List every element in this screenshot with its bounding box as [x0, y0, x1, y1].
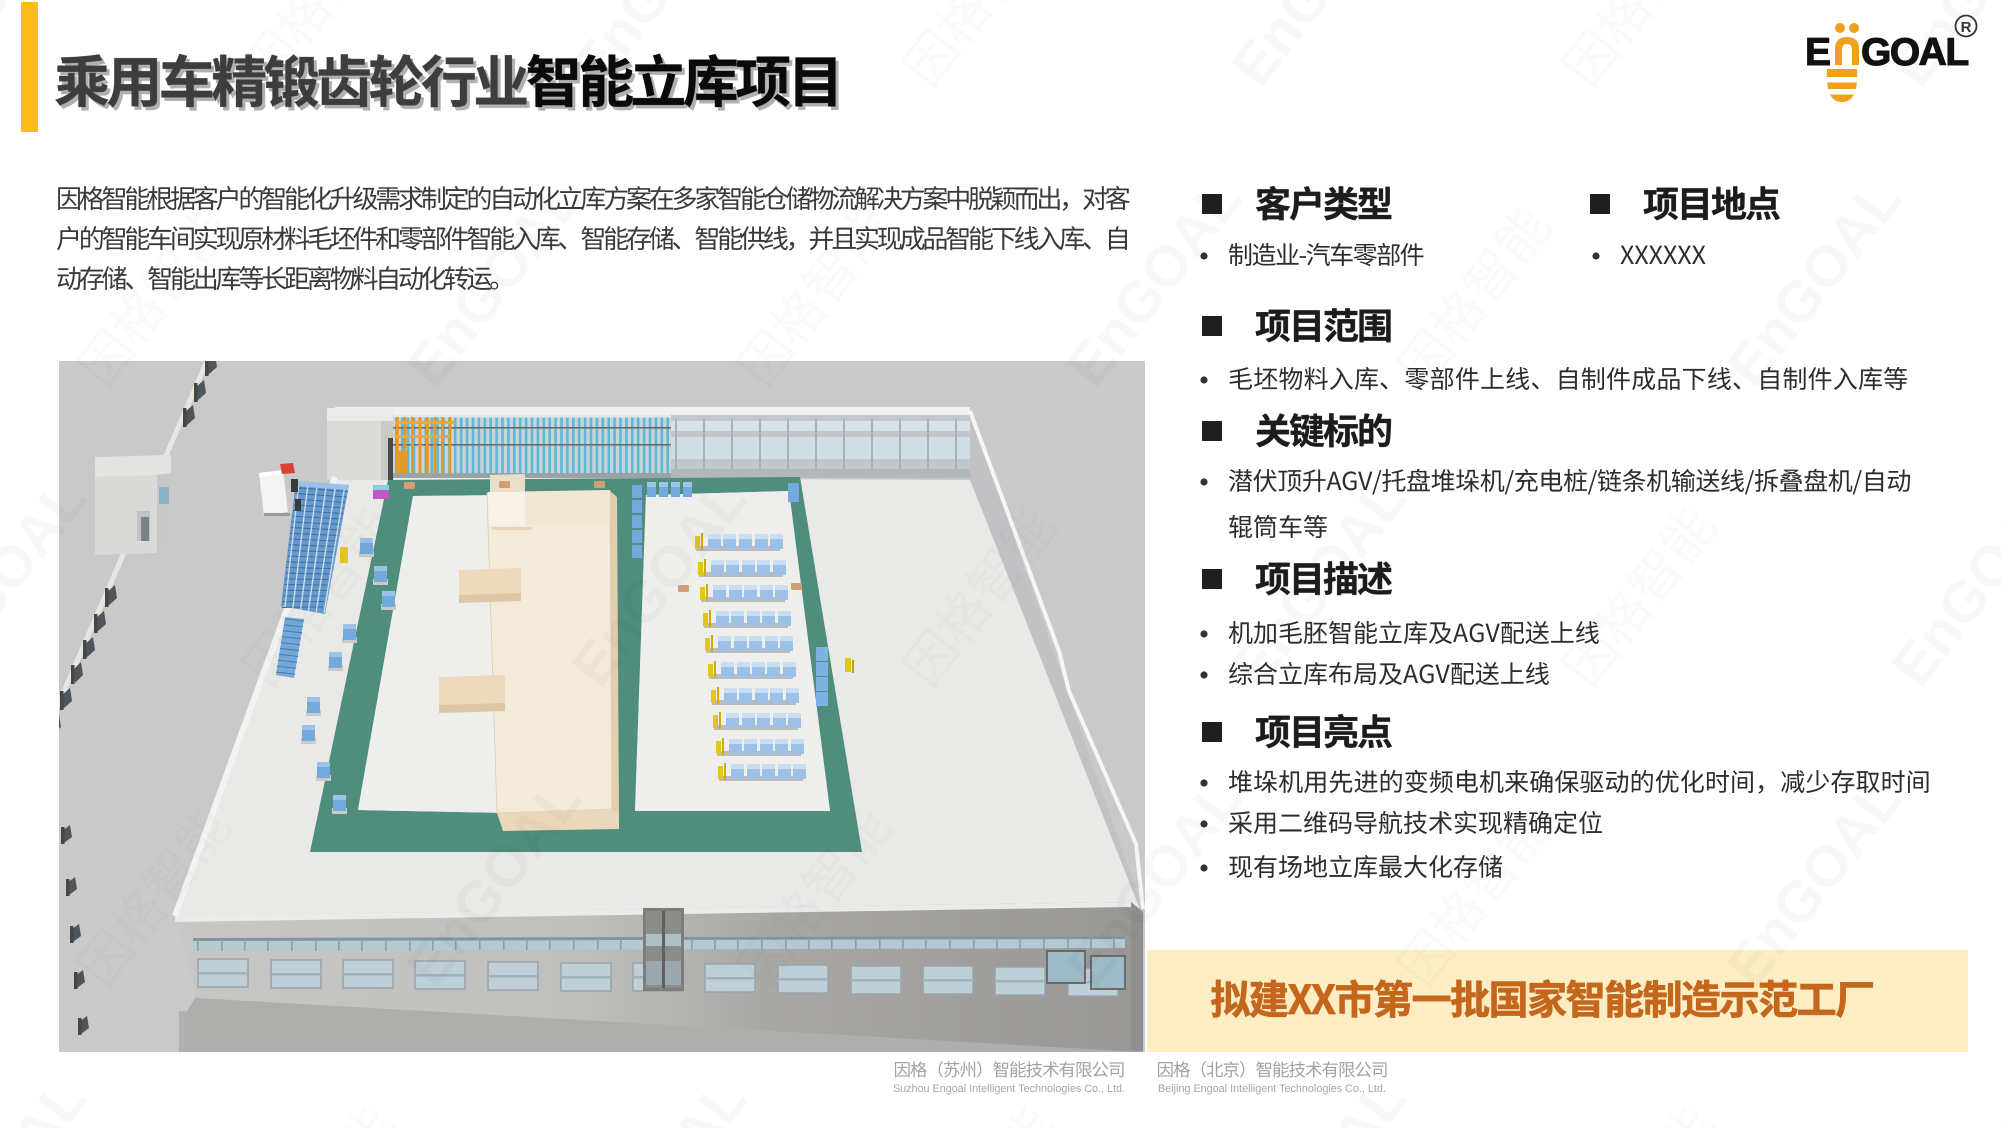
svg-text:EnGOAL: EnGOAL: [1054, 168, 1254, 398]
svg-text:EnGOAL: EnGOAL: [0, 1068, 99, 1128]
svg-text:EnGOAL: EnGOAL: [1879, 468, 2001, 698]
svg-text:R: R: [1961, 19, 1972, 36]
svg-text:EnGOAL: EnGOAL: [1219, 1068, 1419, 1128]
svg-text:E: E: [1805, 31, 1830, 74]
svg-text:EnGOAL: EnGOAL: [559, 1068, 759, 1128]
svg-text:Beijing Engoal Intelligent Tec: Beijing Engoal Intelligent Technologies …: [1158, 1083, 1386, 1095]
svg-text:GOAL: GOAL: [1861, 31, 1968, 74]
svg-text:EnGOAL: EnGOAL: [1219, 0, 1419, 98]
svg-text:Suzhou Engoal Intelligent Tech: Suzhou Engoal Intelligent Technologies C…: [893, 1083, 1125, 1095]
svg-text:EnGOAL: EnGOAL: [1879, 1068, 2001, 1128]
